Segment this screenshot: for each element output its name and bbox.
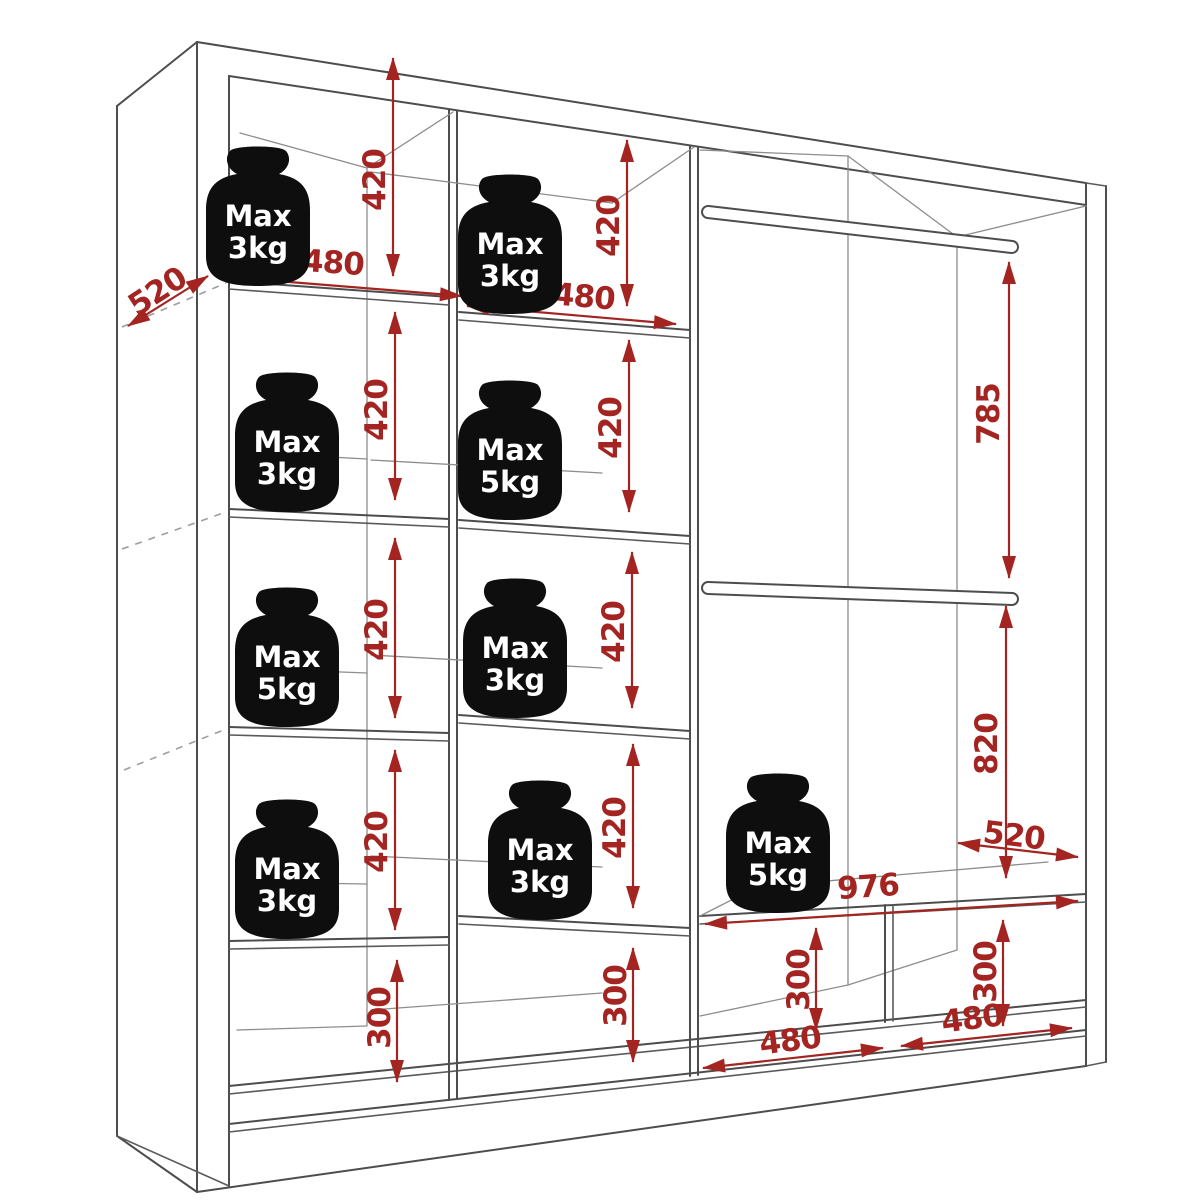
weight-label-kg: 5kg xyxy=(480,465,540,499)
weight-icon-c1r4: Max 3kg xyxy=(235,800,339,940)
dim-label-bl-300: 300 xyxy=(781,949,817,1011)
weight-label-max: Max xyxy=(744,826,811,860)
dim-label-br-300: 300 xyxy=(968,941,1004,1003)
hidden-shelf-line-2 xyxy=(122,512,226,549)
dim-label-c1-width: 480 xyxy=(301,243,365,283)
weight-icon-c2r4: Max 3kg xyxy=(488,781,592,921)
weight-icon-c2r3: Max 3kg xyxy=(463,579,567,719)
right-ceiling-side-edge xyxy=(957,206,1086,237)
weight-icon-c1r3: Max 5kg xyxy=(235,588,339,728)
plinth-top-edge xyxy=(229,1030,1086,1124)
dim-label-785: 785 xyxy=(971,383,1007,445)
weight-icon-bench: Max 5kg xyxy=(726,774,830,914)
shelf-c2r2 xyxy=(459,520,690,536)
dim-label-c1r3: 420 xyxy=(359,599,395,661)
weight-icon-c1r1: Max 3kg xyxy=(206,147,310,287)
dim-label-c2r1: 420 xyxy=(591,195,627,257)
shelf-c1r2 xyxy=(229,509,449,519)
dim-label-br-480: 480 xyxy=(939,997,1005,1040)
weight-label-max: Max xyxy=(476,433,543,467)
weight-icon-c1r2: Max 3kg xyxy=(235,373,339,513)
weight-label-kg: 3kg xyxy=(228,231,288,265)
dim-label-c2-bottom: 300 xyxy=(598,965,634,1027)
shelf-c1r4-b xyxy=(229,945,449,949)
weight-label-max: Max xyxy=(506,833,573,867)
top-front-edge xyxy=(197,42,1086,183)
weight-label-kg: 3kg xyxy=(510,865,570,899)
dim-label-c1r4: 420 xyxy=(359,811,395,873)
dim-label-bench-depth: 520 xyxy=(981,814,1047,857)
left-side-panel-outline xyxy=(117,42,197,1192)
hidden-shelf-line-3 xyxy=(124,729,226,770)
dim-label-c2r2: 420 xyxy=(593,397,629,459)
weight-label-kg: 3kg xyxy=(257,884,317,918)
upper-rod-fill xyxy=(708,212,1012,247)
weight-label-kg: 3kg xyxy=(257,457,317,491)
right-panel-top-edge xyxy=(1086,183,1106,186)
hanging-rods xyxy=(708,212,1012,599)
shelf-c2r3-b xyxy=(459,723,690,739)
bottom-front-edge xyxy=(197,1066,1086,1192)
dim-label-c2r4: 420 xyxy=(597,797,633,859)
shelf-c1r3-b xyxy=(229,735,449,741)
dim-label-c1r2: 420 xyxy=(359,379,395,441)
right-ceiling-back-edge-a xyxy=(700,150,848,156)
weight-icon-c2r1: Max 3kg xyxy=(458,175,562,315)
weight-label-kg: 3kg xyxy=(485,663,545,697)
shelf-c1r3 xyxy=(229,727,449,733)
dim-label-bl-480: 480 xyxy=(757,1019,823,1062)
weight-label-max: Max xyxy=(253,425,320,459)
dim-label-c2r3: 420 xyxy=(596,601,632,663)
ceiling-depth-diagonal-2 xyxy=(612,147,694,203)
weight-icon-c2r2: Max 5kg xyxy=(458,381,562,521)
weight-label-max: Max xyxy=(224,199,291,233)
weight-icons: Max 3kg Max 3kg Max 3kg Max 5kg Max 5kg … xyxy=(206,147,830,940)
dim-label-976: 976 xyxy=(836,867,900,907)
weight-label-kg: 5kg xyxy=(748,858,808,892)
dim-label-depth-520: 520 xyxy=(122,260,194,324)
weight-label-max: Max xyxy=(476,227,543,261)
floor-back-edge-c1 xyxy=(237,1026,367,1030)
shelf-c2r2-b xyxy=(459,528,690,544)
weight-label-max: Max xyxy=(481,631,548,665)
dim-label-c1-bottom: 300 xyxy=(362,987,398,1049)
floor-back-edge-right-b xyxy=(848,950,957,985)
shelf-c1r4 xyxy=(229,937,449,941)
lower-rod-fill xyxy=(708,588,1012,599)
weight-label-kg: 3kg xyxy=(480,259,540,293)
dim-label-820: 820 xyxy=(969,713,1005,775)
weight-label-max: Max xyxy=(253,640,320,674)
page-background: 420 420 420 420 300 480 520 420 420 420 … xyxy=(0,0,1200,1200)
right-panel-bottom-edge xyxy=(1086,1062,1106,1066)
weight-label-kg: 5kg xyxy=(257,672,317,706)
shelf-c2r3 xyxy=(459,715,690,731)
dim-label-c1r1: 420 xyxy=(357,149,393,211)
floor-back-edge-c2 xyxy=(371,993,602,1010)
floor-back-edge-right-a xyxy=(700,985,848,1016)
weight-label-max: Max xyxy=(253,852,320,886)
wardrobe-diagram: 420 420 420 420 300 480 520 420 420 420 … xyxy=(0,0,1200,1200)
left-panel-bottom-edge xyxy=(117,1136,229,1186)
